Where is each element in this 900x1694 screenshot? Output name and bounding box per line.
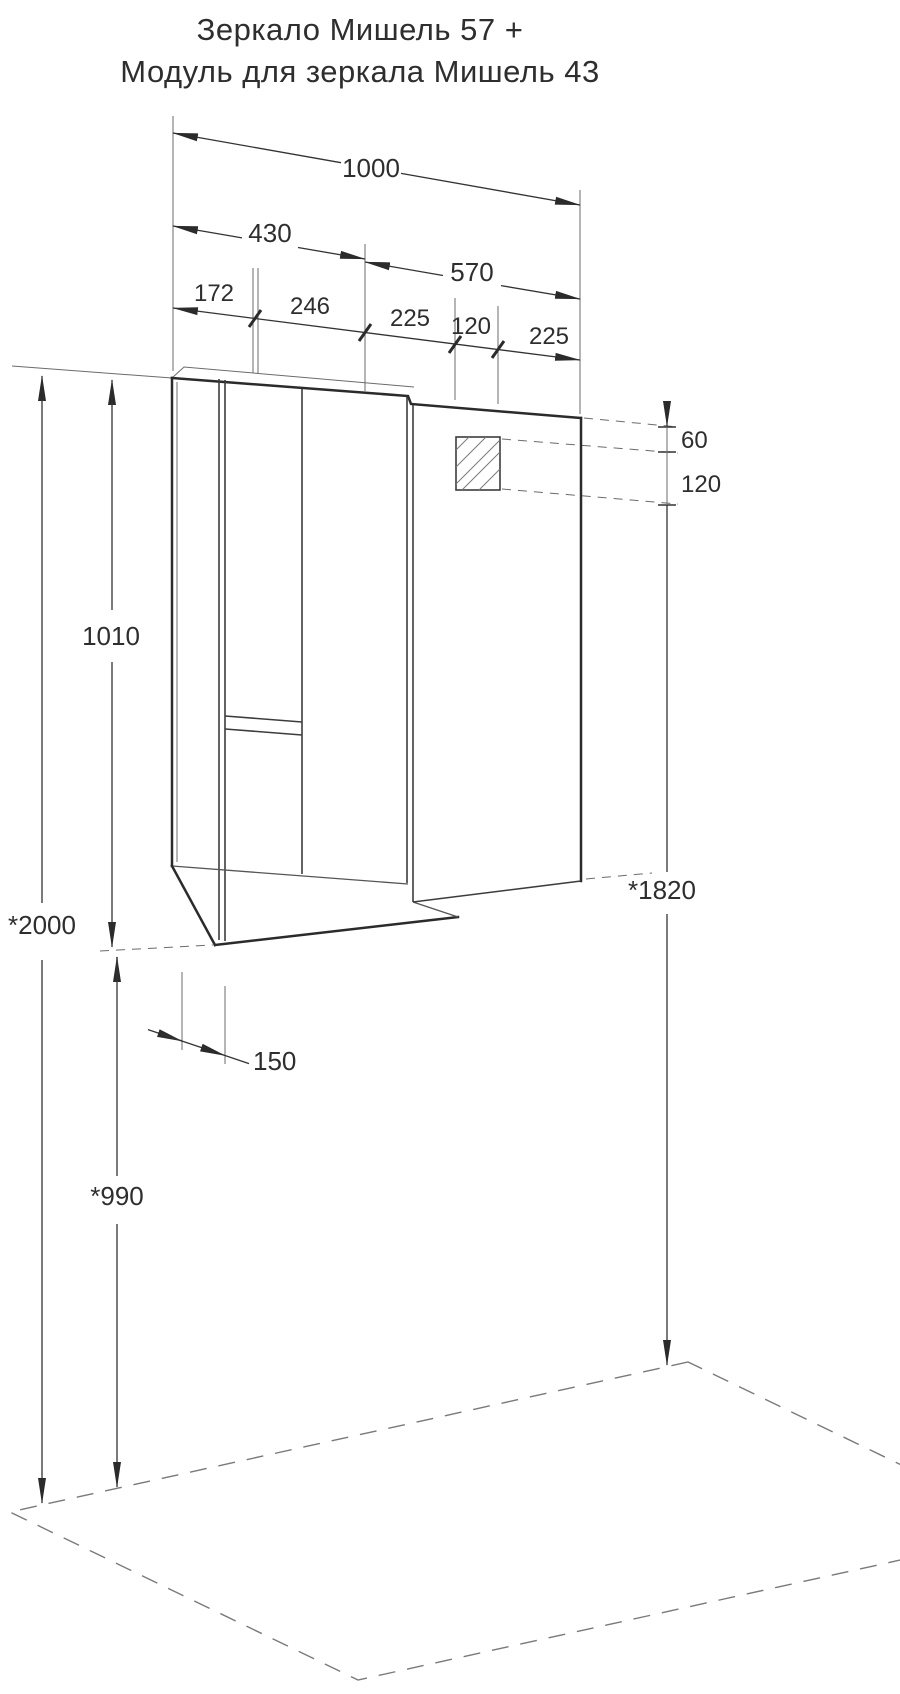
cabinet-drawing: [172, 367, 581, 945]
dim-segment-1: 172: [194, 280, 234, 307]
dim-total-width: 1000: [342, 153, 400, 183]
dim-segment-3: 225: [390, 305, 430, 332]
dim-floor-clearance: *990: [90, 1181, 144, 1211]
dim-segment-4: 120: [451, 313, 491, 340]
dim-module-width: 430: [248, 218, 291, 248]
floor-outline: [10, 1362, 900, 1680]
title-line-2: Модуль для зеркала Мишель 43: [120, 54, 599, 89]
dim-mirror-width: 570: [450, 257, 493, 287]
drawing-page: Зеркало Мишель 57 + Модуль для зеркала М…: [0, 0, 900, 1694]
diagram-title: Зеркало Мишель 57 + Модуль для зеркала М…: [120, 12, 599, 89]
dim-fixture-height: 120: [681, 471, 721, 498]
dim-mirror-top-height: *1820: [628, 875, 696, 905]
dim-depth: 150: [253, 1046, 296, 1076]
title-line-1: Зеркало Мишель 57 +: [197, 12, 524, 47]
dim-cabinet-height: 1010: [82, 621, 140, 651]
dim-overall-height: *2000: [8, 910, 76, 940]
fixture-hatched-square: [456, 437, 500, 490]
dim-top-offset: 60: [681, 427, 708, 454]
dim-segment-5: 225: [529, 323, 569, 350]
dim-segment-2: 246: [290, 293, 330, 320]
technical-drawing: Зеркало Мишель 57 + Модуль для зеркала М…: [0, 0, 900, 1694]
